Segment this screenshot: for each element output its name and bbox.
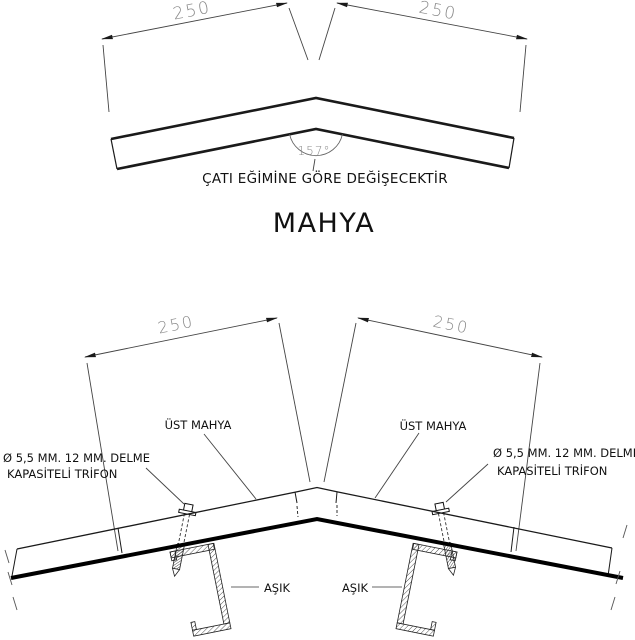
angle-value: 157° [298, 144, 331, 158]
screw-left [166, 503, 197, 578]
drawing-title: MAHYA [273, 208, 375, 239]
screw-label-left-line1: Ø 5,5 MM. 12 MM. DELME [3, 451, 150, 465]
screw-label-right-line1: Ø 5,5 MM. 12 MM. DELME [493, 446, 635, 460]
detail-dim-right-value: 250 [431, 312, 471, 338]
top-dim-left-value: 250 [171, 0, 213, 25]
roof-panel-sheet [11, 519, 623, 578]
break-marks-right [611, 525, 627, 610]
screw-label-left-line2: KAPASİTELİ TRİFON [7, 466, 117, 481]
drawing-canvas: 250 250 157° ÇATI EĞİMİNE GÖRE DEĞİŞECEK… [0, 0, 635, 640]
detail-dim-left-value: 250 [156, 312, 196, 338]
cap-label-left: ÜST MAHYA [165, 416, 232, 432]
ridge-cap-profile [111, 98, 514, 169]
slope-note: ÇATI EĞİMİNE GÖRE DEĞİŞECEKTİR [202, 169, 448, 187]
angle-annotation: 157° [290, 134, 343, 171]
screw-label-left: Ø 5,5 MM. 12 MM. DELME KAPASİTELİ TRİFON [3, 451, 184, 504]
screw-label-right-line2: KAPASİTELİ TRİFON [497, 463, 607, 478]
cap-label-right: ÜST MAHYA [400, 417, 467, 433]
purlin-label-left: AŞIK [264, 581, 291, 595]
top-dimension-left: 250 [102, 0, 308, 112]
cap-label-left-leader [204, 434, 256, 499]
top-dimension-right: 250 [319, 0, 527, 112]
ridge-cap-technical-drawing: 250 250 157° ÇATI EĞİMİNE GÖRE DEĞİŞECEK… [0, 0, 635, 640]
screw-label-right: Ø 5,5 MM. 12 MM. DELME KAPASİTELİ TRİFON [446, 446, 635, 502]
screw-right [431, 502, 462, 577]
purlin-label-right: AŞIK [342, 581, 369, 595]
cap-label-right-leader [375, 433, 419, 498]
top-dim-right-value: 250 [417, 0, 459, 25]
